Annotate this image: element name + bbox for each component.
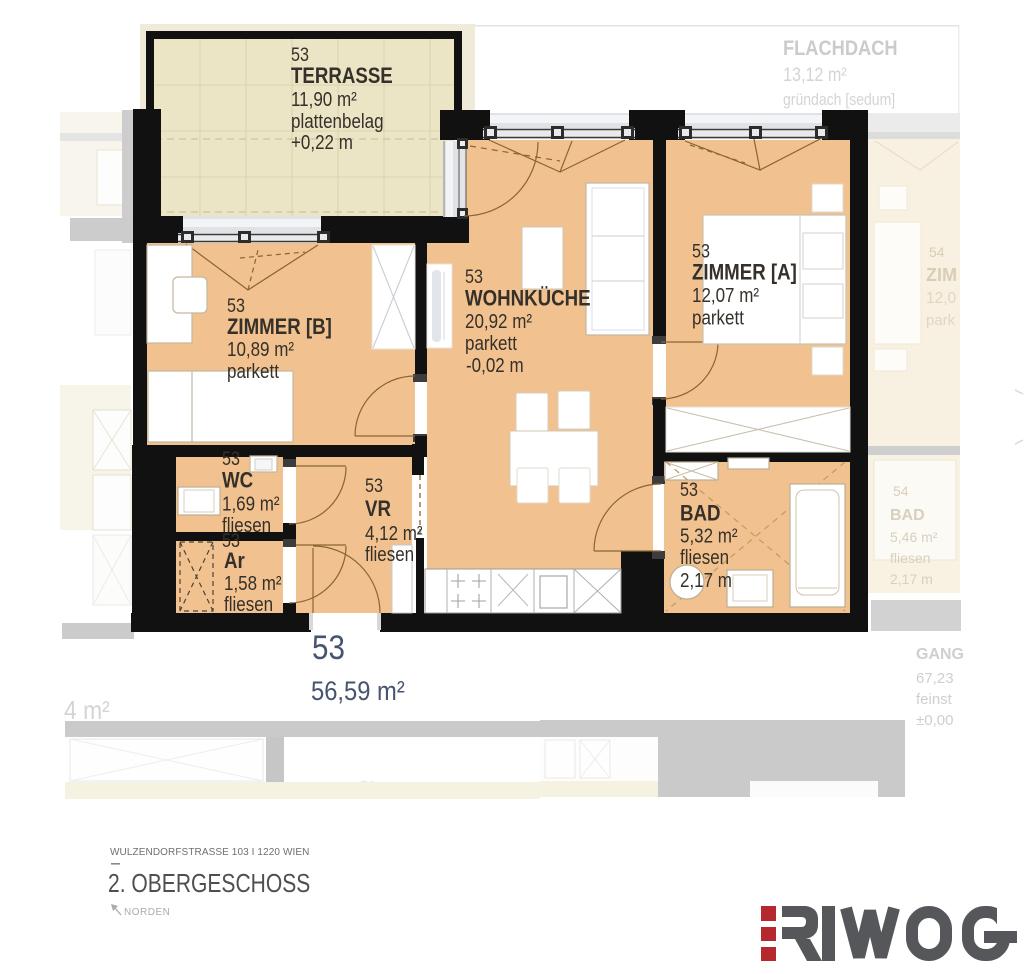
svg-text:-0,02 m: -0,02 m — [466, 354, 524, 377]
svg-text:ZIM: ZIM — [926, 265, 957, 285]
svg-text:5,46 m²: 5,46 m² — [890, 529, 938, 545]
svg-text:2,17 m: 2,17 m — [680, 569, 732, 592]
svg-text:gründach [sedum]: gründach [sedum] — [783, 91, 895, 109]
svg-text:TERRASSE: TERRASSE — [291, 65, 393, 89]
svg-text:WULZENDORFSTRASSE 103 I 1220 W: WULZENDORFSTRASSE 103 I 1220 WIEN — [110, 847, 309, 858]
svg-text:53: 53 — [365, 475, 383, 497]
svg-text:fliesen: fliesen — [365, 543, 414, 566]
svg-text:67,23: 67,23 — [916, 670, 954, 687]
svg-text:4,12 m²: 4,12 m² — [365, 522, 423, 545]
svg-text:ZIMMER [A]: ZIMMER [A] — [692, 261, 797, 285]
svg-text:NORDEN: NORDEN — [124, 907, 170, 918]
svg-text:Ar: Ar — [224, 550, 245, 574]
svg-text:53: 53 — [312, 628, 345, 666]
svg-text:FLACHDACH: FLACHDACH — [783, 37, 898, 60]
svg-text:VR: VR — [365, 498, 391, 522]
svg-text:GANG: GANG — [916, 646, 964, 663]
svg-text:11,90 m²: 11,90 m² — [291, 88, 357, 111]
svg-text:ZIMMER [B]: ZIMMER [B] — [227, 316, 332, 340]
svg-text:parkett: parkett — [227, 360, 280, 383]
svg-text:53: 53 — [222, 530, 240, 552]
svg-text:fliesen: fliesen — [890, 550, 930, 566]
svg-text:12,0: 12,0 — [926, 290, 957, 307]
svg-text:53: 53 — [692, 240, 710, 262]
svg-text:parkett: parkett — [692, 306, 745, 329]
svg-text:10,89 m²: 10,89 m² — [227, 338, 294, 361]
svg-text:fliesen: fliesen — [224, 593, 273, 616]
svg-text:BAD: BAD — [680, 502, 721, 526]
svg-text:54: 54 — [893, 483, 909, 499]
svg-text:5,32 m²: 5,32 m² — [680, 524, 738, 547]
svg-text:±0,00: ±0,00 — [916, 712, 953, 729]
svg-text:1,58 m²: 1,58 m² — [224, 572, 282, 595]
svg-text:parkett: parkett — [465, 332, 518, 355]
svg-text:fliesen: fliesen — [680, 546, 729, 569]
svg-text:53: 53 — [227, 295, 245, 317]
svg-text:12,07 m²: 12,07 m² — [692, 284, 759, 307]
svg-text:53: 53 — [291, 44, 309, 66]
svg-text:20,92 m²: 20,92 m² — [465, 310, 532, 333]
svg-text:53: 53 — [680, 479, 698, 501]
svg-text:2,17 m: 2,17 m — [890, 571, 933, 587]
svg-text:53: 53 — [222, 448, 240, 470]
svg-text:park: park — [926, 312, 956, 329]
svg-text:plattenbelag: plattenbelag — [291, 110, 384, 133]
svg-text:WOHNKÜCHE: WOHNKÜCHE — [465, 286, 591, 311]
svg-text:1,69 m²: 1,69 m² — [222, 492, 280, 515]
svg-text:feinst: feinst — [916, 691, 953, 708]
svg-text:2. OBERGESCHOSS: 2. OBERGESCHOSS — [108, 870, 310, 899]
svg-text:56,59 m²: 56,59 m² — [311, 677, 405, 707]
svg-text:BAD: BAD — [890, 507, 925, 524]
svg-text:+0,22 m: +0,22 m — [291, 131, 353, 154]
svg-text:WC: WC — [222, 469, 253, 493]
svg-text:54: 54 — [929, 244, 945, 260]
svg-text:13,12 m²: 13,12 m² — [783, 64, 847, 86]
svg-text:53: 53 — [465, 266, 483, 288]
